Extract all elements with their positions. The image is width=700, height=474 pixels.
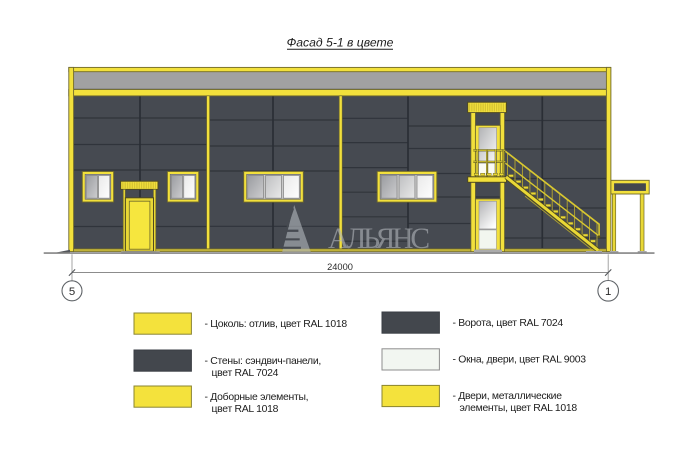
svg-text:АЛЬЯНС: АЛЬЯНС: [328, 223, 430, 255]
svg-text:- Двери, металлические: - Двери, металлические: [453, 391, 563, 402]
svg-text:- Стены: сэндвич-панели,: - Стены: сэндвич-панели,: [205, 356, 321, 367]
svg-text:элементы, цвет RAL 1018: элементы, цвет RAL 1018: [460, 403, 578, 414]
svg-text:- Цоколь: отлив, цвет RAL 1018: - Цоколь: отлив, цвет RAL 1018: [205, 319, 348, 330]
svg-text:- Окна, двери, цвет RAL 9003: - Окна, двери, цвет RAL 9003: [453, 355, 587, 366]
svg-text:1: 1: [605, 286, 611, 298]
svg-text:5: 5: [69, 286, 75, 298]
svg-text:цвет RAL 7024: цвет RAL 7024: [212, 368, 279, 379]
svg-text:- Доборные элементы,: - Доборные элементы,: [205, 391, 309, 403]
svg-text:24000: 24000: [327, 262, 353, 272]
svg-text:Фасад 5-1 в цвете: Фасад 5-1 в цвете: [287, 36, 394, 50]
svg-text:- Ворота, цвет RAL 7024: - Ворота, цвет RAL 7024: [453, 318, 564, 329]
svg-text:цвет RAL 1018: цвет RAL 1018: [212, 404, 279, 415]
